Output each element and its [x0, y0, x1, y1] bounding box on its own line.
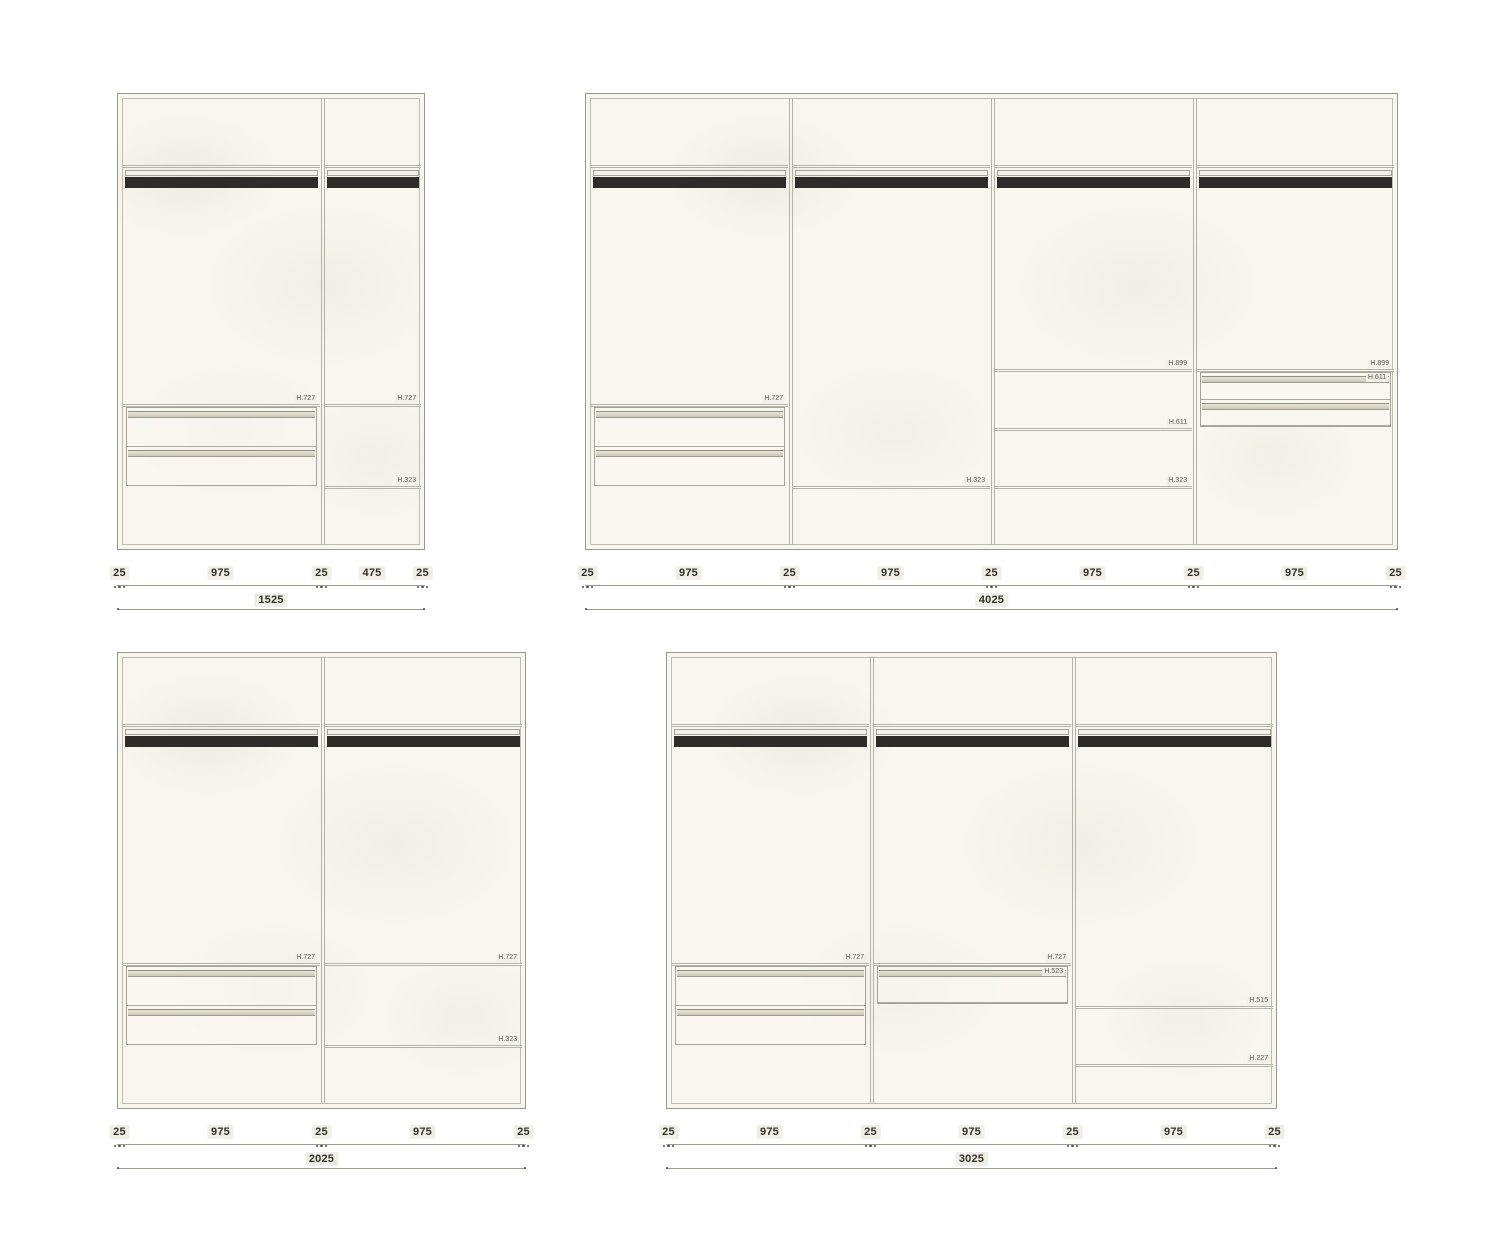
wardrobe-drawing-3025: H.727H.727H.523H.515H.227 [666, 652, 1277, 1109]
drawer-handle [879, 970, 1066, 977]
hanging-rail-strip [1199, 170, 1392, 177]
drawer-front [595, 408, 784, 447]
hanging-rail-strip [876, 729, 1069, 736]
dimension-row: 2597525975252025 [117, 1125, 526, 1173]
dimension-label: 975 [409, 1125, 436, 1139]
shelf-line [325, 963, 522, 966]
dimension-tick [1274, 1145, 1276, 1147]
dimension-tick [991, 586, 993, 588]
shelf-line [793, 486, 990, 489]
top-shelf-line [995, 165, 1192, 168]
dimension-label: 25 [981, 566, 1002, 580]
bay: H.727H.323 [325, 99, 421, 544]
total-dimension-tick [117, 608, 119, 610]
divider-panel [321, 657, 325, 1104]
dimension-tick [114, 1145, 116, 1147]
total-dimension-tick [117, 1167, 119, 1169]
bay: H.323 [793, 99, 990, 544]
dimension-tick [591, 586, 593, 588]
drawer-unit-labels: H.611 [1366, 374, 1388, 382]
total-dimension-line [117, 609, 425, 610]
dimension-tick [527, 1145, 529, 1147]
drawer-handle [1202, 403, 1389, 410]
dimension-tick [1076, 1145, 1078, 1147]
dimension-label: 25 [109, 1125, 130, 1139]
dimension-tick [1399, 586, 1401, 588]
shelf-line [1076, 1006, 1273, 1009]
hanging-rail-bar [593, 177, 786, 189]
shelf-height-label: H.727 [294, 395, 317, 403]
drawer-front [676, 1006, 865, 1044]
dimension-row: 2597525475251525 [117, 566, 425, 614]
drawer-unit: H.611 [1200, 372, 1391, 427]
dimension-tick [1067, 1145, 1069, 1147]
shelf-line [325, 486, 421, 489]
top-shelf-line [874, 724, 1071, 727]
bay: H.515H.227 [1076, 658, 1273, 1103]
dimension-tick [325, 1145, 327, 1147]
total-dimension-tick [585, 608, 587, 610]
drawer-handle [128, 450, 315, 457]
dimension-tick [793, 586, 795, 588]
hanging-rail-strip [125, 729, 318, 736]
bay: H.727 [123, 658, 320, 1103]
dimension-label: 975 [207, 1125, 234, 1139]
dimension-tick [784, 586, 786, 588]
hanging-rail-bar [327, 736, 520, 748]
drawer-handle [596, 450, 783, 457]
dimension-row: 25975259752597525975254025 [585, 566, 1398, 614]
dimension-tick [587, 586, 589, 588]
dimension-tick [422, 586, 424, 588]
shelf-height-label: H.727 [1045, 954, 1068, 962]
dimension-tick [874, 1145, 876, 1147]
total-dimension-line [117, 1168, 526, 1169]
dimension-label: 975 [207, 566, 234, 580]
total-dimension-tick [1275, 1167, 1277, 1169]
dimension-tick [986, 586, 988, 588]
hanging-rail-strip [327, 170, 419, 177]
shelf-line [995, 428, 1192, 431]
shelf-line [995, 486, 1192, 489]
drawer-front [878, 967, 1067, 1003]
dimension-tick [316, 586, 318, 588]
shelf-height-label: H.899 [1166, 360, 1189, 368]
dimension-tick [672, 1145, 674, 1147]
drawer-front [127, 408, 316, 447]
bay: H.899H.611H.323 [995, 99, 1192, 544]
shelf-height-label: H.611 [1167, 419, 1189, 427]
divider-panel [991, 98, 995, 545]
hanging-rail-strip [125, 170, 318, 177]
hanging-rail-bar [795, 177, 988, 189]
shelf-height-label: H.323 [496, 1036, 519, 1044]
wardrobe-drawing-4025: H.727H.323H.899H.611H.323H.899H.611 [585, 93, 1398, 550]
shelf-height-label: H.515 [1247, 997, 1270, 1005]
dimension-row: 259752597525975253025 [666, 1125, 1277, 1173]
top-shelf-line [1197, 165, 1394, 168]
hanging-rail-bar [876, 736, 1069, 748]
shelf-height-label: H.323 [964, 477, 987, 485]
drawer-height-label: H.611 [1366, 374, 1388, 382]
drawer-handle [596, 411, 783, 418]
drawer-unit [675, 966, 866, 1045]
shelf-height-label: H.727 [294, 954, 317, 962]
divider-panel [870, 657, 874, 1104]
dimension-tick [518, 1145, 520, 1147]
divider-panel [1072, 657, 1076, 1104]
total-dimension-tick [1396, 608, 1398, 610]
hanging-rail-strip [795, 170, 988, 177]
dimension-label: 25 [658, 1125, 679, 1139]
dimension-tick [995, 586, 997, 588]
dimension-label: 25 [860, 1125, 881, 1139]
wardrobe-drawing-2025: H.727H.727H.323 [117, 652, 526, 1109]
dimension-tick [123, 586, 125, 588]
total-dimension-line [666, 1168, 1277, 1169]
dimension-label: 25 [311, 1125, 332, 1139]
bay: H.727 [672, 658, 869, 1103]
shelf-line [325, 1045, 522, 1048]
dimension-tick [123, 1145, 125, 1147]
dimension-label: 25 [1385, 566, 1406, 580]
total-dimension-tick [423, 608, 425, 610]
dimension-label: 25 [1264, 1125, 1285, 1139]
top-shelf-line [1076, 724, 1273, 727]
dimension-tick [321, 586, 323, 588]
drawer-front [1201, 400, 1390, 427]
shelf-height-label: H.323 [1166, 477, 1189, 485]
dimension-tick [1072, 1145, 1074, 1147]
top-shelf-line [591, 165, 788, 168]
drawer-unit [594, 407, 785, 486]
hanging-rail-bar [674, 736, 867, 748]
top-shelf-line [793, 165, 990, 168]
drawing-canvas: H.727H.727H.3232597525475251525H.727H.32… [0, 0, 1500, 1250]
hanging-rail-bar [327, 177, 419, 189]
drawer-handle [128, 1009, 315, 1016]
hanging-rail-strip [327, 729, 520, 736]
total-dimension-label: 3025 [955, 1152, 988, 1166]
shelf-line [995, 369, 1192, 372]
dimension-tick [582, 586, 584, 588]
drawer-unit [126, 407, 317, 486]
top-shelf-line [123, 724, 320, 727]
dimension-label: 25 [109, 566, 130, 580]
dimension-label: 25 [412, 566, 433, 580]
hanging-rail-bar [125, 736, 318, 748]
dimension-label: 975 [1281, 566, 1308, 580]
dimension-tick [663, 1145, 665, 1147]
dimension-tick [523, 1145, 525, 1147]
dimension-label: 975 [756, 1125, 783, 1139]
shelf-height-label: H.323 [395, 477, 418, 485]
top-shelf-line [325, 165, 421, 168]
dimension-tick [870, 1145, 872, 1147]
divider-panel [789, 98, 793, 545]
total-dimension-tick [666, 1167, 668, 1169]
dimension-label: 25 [577, 566, 598, 580]
divider-panel [321, 98, 325, 545]
drawer-handle [677, 970, 864, 977]
drawer-front [127, 447, 316, 485]
drawer-handle [128, 970, 315, 977]
hanging-rail-strip [997, 170, 1190, 177]
drawer-height-label: H.523 [1042, 968, 1065, 976]
dimension-tick [1390, 586, 1392, 588]
dimension-tick [1193, 586, 1195, 588]
dimension-tick [865, 1145, 867, 1147]
drawer-unit-labels: H.523 [1042, 968, 1065, 976]
hanging-rail-strip [1078, 729, 1271, 736]
dimension-tick [417, 586, 419, 588]
hanging-rail-bar [1078, 736, 1271, 748]
drawer-handle [677, 1009, 864, 1016]
drawer-unit: H.523 [877, 966, 1068, 1004]
drawer-handle [128, 411, 315, 418]
dimension-label: 25 [1062, 1125, 1083, 1139]
divider-panel [1193, 98, 1197, 545]
drawer-handle [1202, 376, 1389, 383]
drawer-front [127, 1006, 316, 1044]
bay: H.727H.523 [874, 658, 1071, 1103]
total-dimension-label: 2025 [305, 1152, 338, 1166]
dimension-label: 975 [675, 566, 702, 580]
dimension-tick [316, 1145, 318, 1147]
drawer-unit [126, 966, 317, 1045]
dimension-label: 25 [1183, 566, 1204, 580]
dimension-label: 975 [877, 566, 904, 580]
dimension-tick [426, 586, 428, 588]
dimension-label: 25 [513, 1125, 534, 1139]
dimension-tick [119, 586, 121, 588]
bay: H.899H.611 [1197, 99, 1394, 544]
drawer-front [676, 967, 865, 1006]
dimension-label: 975 [1160, 1125, 1187, 1139]
hanging-rail-bar [125, 177, 318, 189]
dimension-tick [119, 1145, 121, 1147]
dimension-tick [1197, 586, 1199, 588]
hanging-rail-bar [997, 177, 1190, 189]
dimension-tick [114, 586, 116, 588]
shelf-height-label: H.899 [1368, 360, 1391, 368]
dimension-label: 975 [1079, 566, 1106, 580]
dimension-label: 975 [958, 1125, 985, 1139]
drawer-front [127, 967, 316, 1006]
dimension-tick [1269, 1145, 1271, 1147]
drawer-front [595, 447, 784, 485]
dimension-tick [325, 586, 327, 588]
dimension-tick [1278, 1145, 1280, 1147]
dimension-tick [789, 586, 791, 588]
total-dimension-line [585, 609, 1398, 610]
dimension-tick [668, 1145, 670, 1147]
bay: H.727 [591, 99, 788, 544]
dimension-line [666, 1144, 1277, 1145]
dimension-label: 475 [359, 566, 386, 580]
bay: H.727H.323 [325, 658, 522, 1103]
top-shelf-line [672, 724, 869, 727]
total-dimension-label: 4025 [975, 593, 1008, 607]
hanging-rail-bar [1199, 177, 1392, 189]
dimension-tick [1395, 586, 1397, 588]
top-shelf-line [123, 165, 320, 168]
dimension-line [117, 585, 425, 586]
shelf-height-label: H.727 [843, 954, 866, 962]
hanging-rail-strip [674, 729, 867, 736]
shelf-line [325, 404, 421, 407]
shelf-height-label: H.227 [1247, 1055, 1270, 1063]
dimension-tick [1188, 586, 1190, 588]
hanging-rail-strip [593, 170, 786, 177]
total-dimension-label: 1525 [254, 593, 287, 607]
top-shelf-line [325, 724, 522, 727]
shelf-line [1076, 1064, 1273, 1067]
shelf-height-label: H.727 [496, 954, 519, 962]
wardrobe-drawing-1525: H.727H.727H.323 [117, 93, 425, 550]
dimension-label: 25 [311, 566, 332, 580]
shelf-height-label: H.727 [762, 395, 785, 403]
drawer-front [1201, 373, 1390, 400]
shelf-height-label: H.727 [395, 395, 418, 403]
dimension-tick [321, 1145, 323, 1147]
dimension-label: 25 [779, 566, 800, 580]
bay: H.727 [123, 99, 320, 544]
total-dimension-tick [524, 1167, 526, 1169]
